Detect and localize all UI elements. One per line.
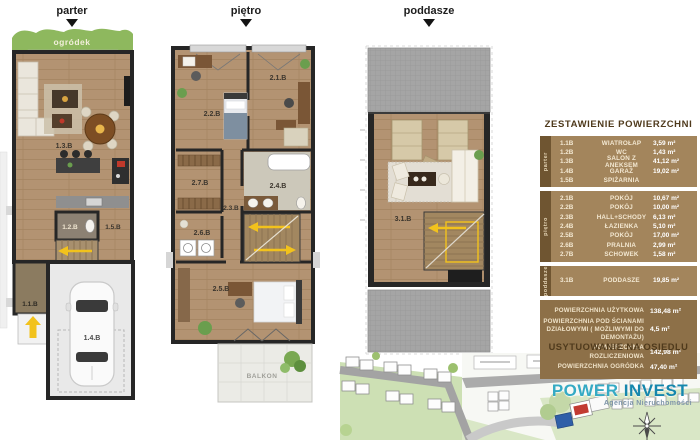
area-summary: POWIERZCHNIA UŻYTKOWA138,48 m² POWIERZCH…	[540, 300, 697, 379]
room-label-2-3: 2.3.B	[223, 205, 239, 212]
room-code: 2.5B	[551, 232, 590, 239]
room-label-entry: 1.1.B	[22, 301, 38, 308]
bathroom-2-4	[244, 152, 310, 210]
arrow-down-icon	[240, 19, 252, 27]
section-strip-label: parter	[543, 152, 549, 171]
stairs-poddasze	[424, 212, 484, 270]
floorplan-sheet: parter ogródek	[0, 0, 700, 440]
garden-label: ogródek	[53, 37, 90, 47]
window	[252, 45, 306, 52]
area-section-pietro: piętro 2.1BPOKÓJ10,67 m² 2.2BPOKÓJ10,00 …	[540, 191, 697, 261]
room-code: 2.7B	[551, 251, 590, 258]
room-name: POKÓJ	[590, 232, 653, 239]
room-name: PODDASZE	[590, 277, 653, 284]
compass-icon	[628, 408, 666, 440]
section-strip-label: poddasze	[543, 266, 549, 296]
logo-subtitle: Agencja Nieruchomości	[544, 400, 696, 407]
room-code: 2.4B	[551, 223, 590, 230]
area-section-poddasze: poddasze 3.1BPODDASZE19,85 m²	[540, 266, 697, 296]
room-name: SPIŻARNIA	[590, 177, 653, 184]
chimney-block	[448, 270, 482, 282]
site-plan-title: USYTUOWANIE NA OSIEDLU	[540, 342, 697, 352]
floorplan-parter: parter ogródek	[0, 5, 133, 398]
garden: ogródek	[12, 29, 133, 53]
room-name: SCHOWEK	[590, 251, 653, 258]
room-code: 2.3B	[551, 214, 590, 221]
wall	[368, 112, 374, 286]
arrow-down-icon	[423, 19, 435, 27]
room-label-pantry: 1.5.B	[105, 224, 121, 231]
room-area: 19,85 m²	[653, 277, 697, 284]
room-code: 1.4B	[551, 168, 590, 175]
room-label-garage: 1.4.B	[84, 335, 101, 342]
car-icon	[66, 282, 118, 386]
room-code: 2.1B	[551, 195, 590, 202]
bowl	[62, 96, 68, 102]
plan-title-pietro: piętro	[231, 5, 262, 17]
roof-top	[368, 48, 490, 112]
room-code: 1.3B	[551, 158, 590, 165]
room-code: 2.2B	[551, 204, 590, 211]
room-name: GARAŻ	[590, 168, 653, 175]
plan-title-poddasze: poddasze	[404, 5, 455, 17]
room-label-2-4: 2.4.B	[270, 183, 287, 190]
area-section-parter: parter 1.1BWIATROŁAP3,59 m² 1.2BWC1,43 m…	[540, 136, 697, 187]
room-area: 10,67 m²	[653, 195, 697, 202]
section-strip-poddasze: poddasze	[540, 266, 551, 296]
table-row: 2.4BŁAZIENKA5,10 m²	[551, 222, 697, 231]
room-code: 1.5B	[551, 177, 590, 184]
balcony-label: BALKON	[247, 373, 278, 380]
table-row: 3.1BPODDASZE19,85 m²	[551, 276, 697, 285]
wall	[484, 112, 490, 286]
tree	[372, 352, 380, 360]
table-row: 2.2BPOKÓJ10,00 m²	[551, 203, 697, 212]
plan-title-parter: parter	[56, 5, 88, 17]
table-row: 2.5BPOKÓJ17,00 m²	[551, 231, 697, 240]
stairs-pietro	[244, 214, 300, 262]
room-code: 2.6B	[551, 242, 590, 249]
room-name: POKÓJ	[590, 195, 653, 202]
summary-label: POWIERZCHNIA POD ŚCIANAMI DZIAŁOWYMI ( M…	[542, 318, 650, 342]
decor	[60, 119, 65, 124]
table-row: 1.5BSPIŻARNIA	[551, 176, 697, 185]
table-row: 1.1BWIATROŁAP3,59 m²	[551, 139, 697, 148]
room-label-2-7: 2.7.B	[192, 180, 209, 187]
room-label-living: 1.3.B	[56, 143, 73, 150]
room-area: 1,58 m²	[653, 251, 697, 258]
room-code: 3.1B	[551, 277, 590, 284]
balcony: BALKON	[218, 344, 312, 402]
dining-set	[81, 107, 119, 151]
arrow-down-icon	[66, 19, 78, 27]
logo-wordmark: POWER INVEST	[544, 381, 696, 401]
summary-label: POWIERZCHNIA UŻYTKOWA	[542, 307, 650, 315]
room-name: ŁAZIENKA	[590, 223, 653, 230]
room-label-2-2: 2.2.B	[204, 111, 221, 118]
summary-label: POWIERZCHNIA OGRÓDKA	[542, 363, 650, 371]
summary-value: 47,40 m²	[650, 364, 692, 371]
stairs-parter	[56, 240, 98, 262]
logo-word-power: POWER	[552, 381, 619, 400]
summary-row: POWIERZCHNIA POD ŚCIANAMI DZIAŁOWYMI ( M…	[542, 318, 692, 342]
neighbor-strip	[0, 152, 7, 328]
room-area: 19,02 m²	[653, 168, 697, 175]
tree	[448, 363, 458, 373]
table-row: 2.7BSCHOWEK1,58 m²	[551, 250, 697, 259]
wall-stub	[313, 252, 320, 268]
room-code: 1.1B	[551, 140, 590, 147]
summary-value: 4,5 m²	[650, 326, 692, 333]
area-table-title: ZESTAWIENIE POWIERZCHNI	[540, 119, 697, 130]
wall-stub	[166, 252, 173, 268]
powerinvest-logo: POWER INVEST Agencja Nieruchomości	[544, 381, 696, 440]
table-row: 1.3BSALON Z ANEKSEM41,12 m²	[551, 157, 697, 166]
room-area: 41,12 m²	[653, 158, 697, 165]
room-name: WIATROŁAP	[590, 140, 653, 147]
room-code: 1.2B	[551, 149, 590, 156]
section-strip-label: piętro	[543, 217, 549, 236]
wall	[368, 282, 490, 287]
table-row: 2.6BPRALNIA2,99 m²	[551, 240, 697, 249]
room-area: 6,13 m²	[653, 214, 697, 221]
room-area: 17,00 m²	[653, 232, 697, 239]
tree	[340, 424, 352, 436]
room-name: HALL+SCHODY	[590, 214, 653, 221]
window	[190, 45, 246, 52]
room-label-2-5: 2.5.B	[213, 286, 230, 293]
summary-value: 138,48 m²	[650, 308, 692, 315]
area-table: ZESTAWIENIE POWIERZCHNI parter 1.1BWIATR…	[540, 119, 697, 379]
room-area: 5,10 m²	[653, 223, 697, 230]
summary-row: POWIERZCHNIA UŻYTKOWA138,48 m²	[542, 307, 692, 315]
room-label-2-6: 2.6.B	[194, 230, 211, 237]
floorplan-poddasze: poddasze 3.1.B	[360, 5, 492, 354]
section-strip-parter: parter	[540, 136, 551, 187]
room-label-3-1: 3.1.B	[395, 216, 412, 223]
table-row: 2.1BPOKÓJ10,67 m²	[551, 194, 697, 203]
room-label-wc: 1.2.B	[62, 224, 78, 231]
summary-row: POWIERZCHNIA OGRÓDKA47,40 m²	[542, 363, 692, 371]
room-name: POKÓJ	[590, 204, 653, 211]
measure-ticks	[360, 130, 365, 220]
room-area: 1,43 m²	[653, 149, 697, 156]
room-area: 10,00 m²	[653, 204, 697, 211]
roof-bottom	[368, 290, 490, 352]
logo-word-invest: INVEST	[624, 381, 688, 400]
table-row: 1.4BGARAŻ19,02 m²	[551, 166, 697, 175]
section-strip-pietro: piętro	[540, 191, 551, 261]
room-area: 2,99 m²	[653, 242, 697, 249]
table-row: 2.3BHALL+SCHODY6,13 m²	[551, 213, 697, 222]
toilet-icon	[86, 220, 95, 233]
room-label-2-1: 2.1.B	[270, 75, 287, 82]
room-name: PRALNIA	[590, 242, 653, 249]
tv-sideboard	[124, 76, 130, 106]
floorplan-pietro: piętro 2.2.B 2.1.B	[166, 5, 320, 402]
room-area: 3,59 m²	[653, 140, 697, 147]
